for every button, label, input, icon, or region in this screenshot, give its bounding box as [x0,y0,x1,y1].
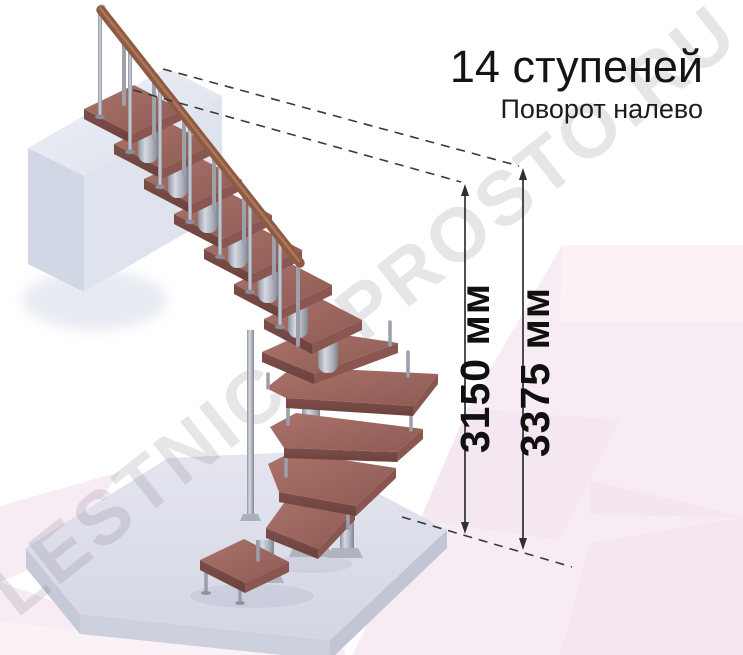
diagram-canvas: LESTNICA-PROSTO.RU [0,0,743,655]
diagram-subtitle: Поворот налево [500,94,703,124]
staircase-diagram: LESTNICA-PROSTO.RU [0,0,743,655]
dimension-label-total-height: 3375 мм [512,287,558,457]
diagram-title: 14 ступеней [450,41,703,92]
dimension-label-stair-height: 3150 мм [452,283,498,453]
